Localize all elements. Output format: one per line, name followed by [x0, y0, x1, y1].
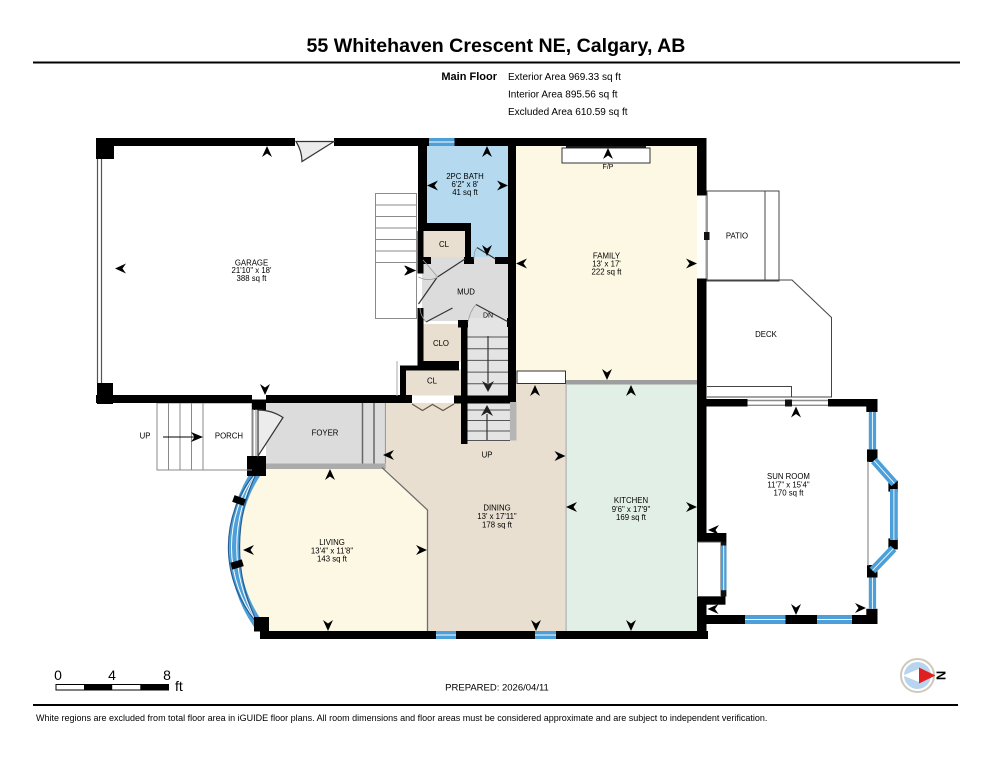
svg-text:DN: DN	[483, 313, 493, 320]
svg-text:222 sq ft: 222 sq ft	[592, 268, 623, 277]
svg-text:169 sq ft: 169 sq ft	[616, 513, 647, 522]
svg-text:PORCH: PORCH	[215, 432, 243, 441]
svg-text:388 sq ft: 388 sq ft	[237, 274, 268, 283]
svg-text:DECK: DECK	[755, 330, 777, 339]
svg-text:41 sq ft: 41 sq ft	[452, 188, 478, 197]
svg-text:0: 0	[54, 667, 62, 683]
svg-text:PATIO: PATIO	[726, 232, 748, 241]
svg-text:N: N	[934, 671, 949, 680]
svg-text:UP: UP	[140, 432, 151, 441]
svg-text:MUD: MUD	[457, 288, 475, 297]
svg-text:4: 4	[108, 667, 116, 683]
svg-text:Excluded Area 610.59 sq ft: Excluded Area 610.59 sq ft	[508, 107, 628, 118]
svg-text:F/P: F/P	[603, 164, 614, 171]
svg-text:PREPARED: 2026/04/11: PREPARED: 2026/04/11	[445, 683, 549, 694]
svg-text:178 sq ft: 178 sq ft	[482, 521, 513, 530]
svg-text:Interior Area 895.56 sq ft: Interior Area 895.56 sq ft	[508, 90, 618, 101]
svg-text:FOYER: FOYER	[312, 429, 339, 438]
svg-text:ft: ft	[175, 678, 183, 694]
svg-text:CLO: CLO	[433, 339, 449, 348]
svg-text:White regions are excluded fro: White regions are excluded from total fl…	[36, 713, 767, 723]
svg-text:143 sq ft: 143 sq ft	[317, 555, 348, 564]
svg-text:Exterior Area 969.33 sq ft: Exterior Area 969.33 sq ft	[508, 72, 621, 83]
svg-text:55 Whitehaven Crescent NE, Cal: 55 Whitehaven Crescent NE, Calgary, AB	[307, 35, 686, 57]
svg-text:UP: UP	[482, 451, 493, 460]
svg-text:CL: CL	[439, 240, 450, 249]
svg-text:170 sq ft: 170 sq ft	[774, 489, 805, 498]
svg-text:KITCHEN: KITCHEN	[614, 496, 648, 505]
svg-text:CL: CL	[427, 377, 438, 386]
svg-text:8: 8	[163, 667, 171, 683]
svg-text:Main Floor: Main Floor	[441, 71, 497, 83]
